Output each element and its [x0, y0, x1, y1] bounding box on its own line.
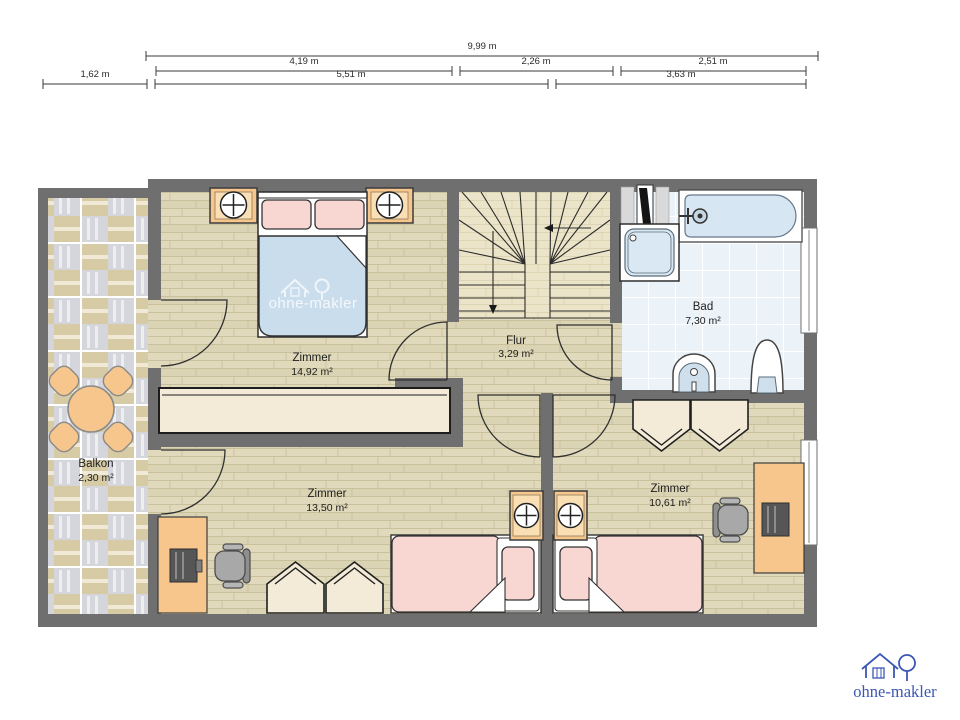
room-br-label: Zimmer	[651, 483, 690, 495]
nightstand-icon	[510, 491, 543, 540]
shaft-icon	[621, 185, 669, 226]
dim-r3-1: 1,62 m	[80, 69, 109, 80]
bathtub-icon	[679, 190, 802, 242]
floorplan-page: 9,99 m 4,19 m 2,26 m 2,51 m 1,62 m 5,51 …	[0, 0, 960, 720]
dim-r3-3: 3,63 m	[666, 69, 695, 80]
balcony-rail-left	[38, 188, 48, 614]
nightstand-icon	[554, 491, 587, 540]
hall-label: Flur	[506, 335, 526, 347]
room-bl-label: Zimmer	[308, 488, 347, 500]
nightstand-icon	[366, 188, 413, 223]
hall-area: 3,29 m²	[498, 348, 534, 360]
bath-area: 7,30 m²	[685, 315, 721, 327]
wall-bottom	[38, 614, 817, 627]
double-bed-icon	[258, 192, 367, 337]
watermark-text: ohne-makler	[269, 295, 358, 312]
dim-r3-2: 5,51 m	[336, 69, 365, 80]
logo-text: ohne-makler	[853, 682, 937, 701]
dim-total: 9,99 m	[467, 41, 496, 52]
single-bed-icon	[391, 535, 541, 613]
logo-house-tree-icon	[862, 654, 915, 681]
sink-icon	[673, 354, 715, 392]
brand-logo: ohne-makler	[853, 654, 937, 701]
bath-label: Bad	[693, 301, 713, 313]
floorplan-image: 9,99 m 4,19 m 2,26 m 2,51 m 1,62 m 5,51 …	[0, 0, 960, 720]
nightstand-icon	[210, 188, 257, 223]
balcony-label: Balkon	[78, 458, 113, 470]
balcony-area: 2,30 m²	[78, 472, 114, 484]
dim-r2-2: 2,26 m	[521, 56, 550, 67]
bedroom-label: Zimmer	[293, 352, 332, 364]
bedroom-area: 14,92 m²	[291, 366, 333, 378]
room-br-area: 10,61 m²	[649, 497, 691, 509]
room-bl-area: 13,50 m²	[306, 502, 348, 514]
balcony-rail-top	[38, 188, 148, 198]
dim-r2-1: 4,19 m	[289, 56, 318, 67]
wardrobe-icon	[159, 388, 450, 433]
desk-icon	[754, 463, 804, 573]
dim-r2-3: 2,51 m	[698, 56, 727, 67]
single-bed-icon	[553, 535, 703, 613]
balcony-table-icon	[68, 386, 114, 432]
shower-icon	[620, 224, 679, 281]
desk-icon	[158, 517, 207, 613]
dimension-lines: 9,99 m 4,19 m 2,26 m 2,51 m 1,62 m 5,51 …	[43, 41, 818, 89]
